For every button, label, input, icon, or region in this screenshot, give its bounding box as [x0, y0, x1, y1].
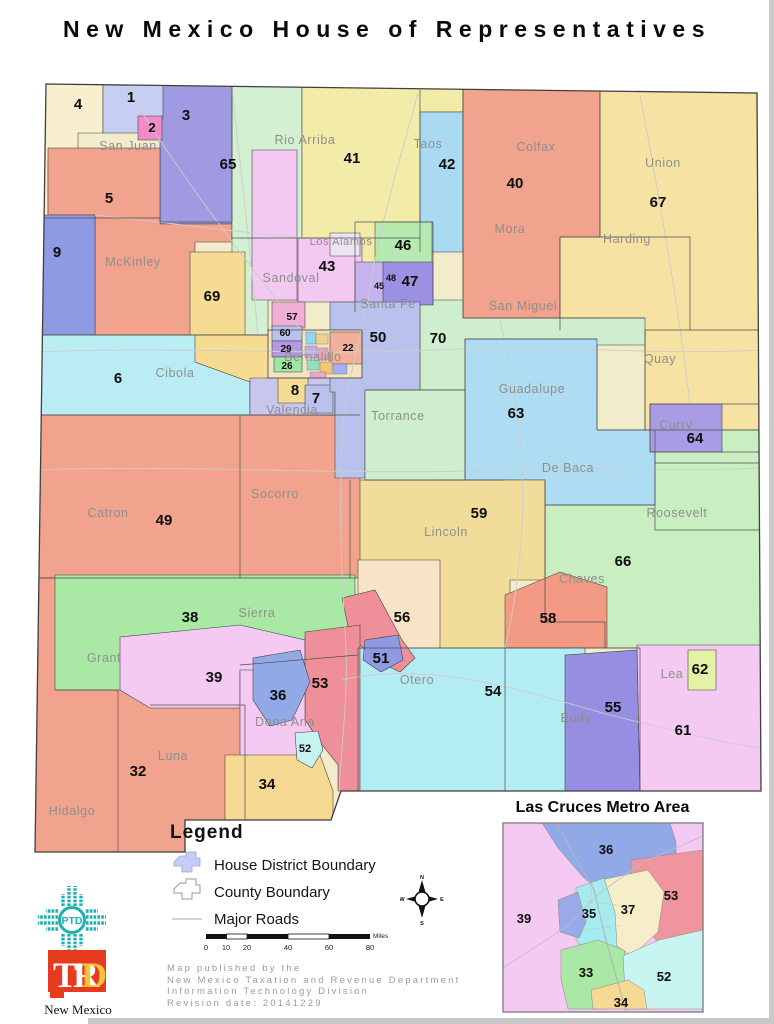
inset-district-label: 33 — [579, 965, 593, 980]
county-label: Rio Arriba — [275, 133, 336, 147]
district-label: 59 — [471, 505, 488, 522]
county-label: Mora — [495, 222, 526, 236]
inset-district-label: 39 — [517, 911, 531, 926]
county-label: Colfax — [516, 140, 555, 154]
legend-item-label: Major Roads — [214, 911, 299, 928]
scalebar-tick-label: 20 — [243, 943, 251, 952]
inset-map: 3653373539335234 — [498, 820, 710, 1016]
inset-district-label: 52 — [657, 969, 671, 984]
page-edge-right — [769, 0, 774, 1024]
county-label: San Miguel — [489, 299, 558, 313]
scalebar-tick-label: 0 — [204, 943, 208, 952]
district-label: 29 — [280, 344, 292, 355]
county-label: Luna — [158, 749, 188, 763]
district-label: 58 — [540, 610, 557, 627]
county-label: Eddy — [561, 711, 592, 725]
county-label: Cibola — [155, 366, 194, 380]
county-label: Chaves — [559, 572, 605, 586]
scale-unit: Miles — [373, 933, 389, 940]
district-label: 7 — [312, 390, 320, 407]
compass-rose: N S W E — [400, 874, 444, 926]
district-label: 3 — [182, 107, 190, 124]
county-label: Sierra — [239, 606, 276, 620]
compass-e: E — [440, 897, 444, 903]
trd-logo-icon: TR D New Mexico — [34, 946, 126, 1022]
district-label: 52 — [299, 743, 311, 755]
county-label: Lea — [661, 667, 684, 681]
county-label: Quay — [644, 352, 676, 366]
district-label: 62 — [692, 661, 709, 678]
district-label: 2 — [148, 120, 155, 135]
county-label: Taos — [414, 137, 443, 151]
compass-s: S — [420, 921, 424, 926]
district-label: 6 — [114, 370, 122, 387]
district-label: 32 — [130, 763, 147, 780]
county-label: Sandoval — [263, 271, 320, 285]
district-label: 66 — [615, 553, 632, 570]
county-label: Catron — [87, 506, 128, 520]
district-label: 34 — [259, 776, 276, 793]
district-label: 8 — [291, 382, 299, 399]
county-label: Los Alamos — [310, 236, 373, 248]
district-label: 65 — [220, 156, 237, 173]
district-label: 45 — [374, 281, 384, 291]
district-label: 61 — [675, 722, 692, 739]
district-label: 42 — [439, 156, 456, 173]
legend-heading: Legend — [170, 822, 450, 844]
district-label: 22 — [342, 343, 354, 354]
map-page: New Mexico House of Representatives — [0, 0, 774, 1024]
county-label: Santa Fe — [360, 297, 416, 311]
district-label: 55 — [605, 699, 622, 716]
district-label: 47 — [402, 273, 419, 290]
district-label: 5 — [105, 190, 113, 207]
county-label: McKinley — [105, 255, 161, 269]
inset-title: Las Cruces Metro Area — [495, 799, 710, 817]
county-label: Torrance — [371, 409, 424, 423]
scale-bar: Miles 01020406080 — [202, 928, 397, 956]
legend-item-label: House District Boundary — [214, 857, 376, 874]
district-label: 60 — [279, 328, 291, 339]
district-label: 56 — [394, 609, 411, 626]
major-roads-icon — [170, 911, 214, 929]
footer-line: Map published by the — [167, 963, 460, 975]
county-label: San Juan — [99, 139, 157, 153]
scalebar-tick-label: 80 — [366, 943, 374, 952]
footer-line: Information Technology Division — [167, 986, 460, 998]
county-label: Hidalgo — [49, 804, 96, 818]
inset-district-label: 34 — [614, 995, 629, 1010]
county-label: Harding — [603, 232, 651, 246]
district-label: 54 — [485, 683, 502, 700]
district-label: 53 — [312, 675, 329, 692]
legend-item-label: County Boundary — [214, 884, 330, 901]
district-label: 64 — [687, 430, 704, 447]
county-label: Valencia — [266, 403, 318, 417]
district-label: 63 — [508, 405, 525, 422]
district-label: 46 — [395, 237, 412, 254]
district-label: 69 — [204, 288, 221, 305]
county-label: Grant — [87, 651, 121, 665]
county-label: Dona Ana — [255, 715, 315, 729]
district-label: 40 — [507, 175, 524, 192]
footer-line: Revision date: 20141229 — [167, 998, 460, 1010]
trd-logo-caption: New Mexico — [44, 1002, 112, 1017]
county-label: Union — [645, 156, 681, 170]
publication-note: Map published by the New Mexico Taxation… — [167, 963, 460, 1009]
scalebar-tick-label: 60 — [325, 943, 333, 952]
ptd-logo-text: PTD — [62, 915, 83, 927]
district-label: 4 — [74, 96, 83, 113]
county-label: Bernalillo — [284, 350, 341, 364]
footer-line: New Mexico Taxation and Revenue Departme… — [167, 975, 460, 987]
district-label: 1 — [127, 89, 135, 106]
inset-district-label: 36 — [599, 842, 613, 857]
district-label: 57 — [286, 312, 298, 323]
scalebar-tick-label: 10 — [222, 943, 230, 952]
scalebar-tick-label: 40 — [284, 943, 292, 952]
district-label: 51 — [373, 650, 390, 667]
district-label: 50 — [370, 329, 387, 346]
district-label: 38 — [182, 609, 199, 626]
district-label: 36 — [270, 687, 287, 704]
county-label: Lincoln — [424, 525, 468, 539]
trd-logo-text-accent: D — [81, 955, 107, 995]
district-label: 49 — [156, 512, 173, 529]
county-label: Guadalupe — [499, 382, 566, 396]
county-label: Roosevelt — [647, 506, 708, 520]
district-label: 41 — [344, 150, 361, 167]
scale-tick-labels: 01020406080 — [204, 943, 374, 952]
compass-w: W — [400, 897, 405, 903]
inset-district-label: 37 — [621, 902, 635, 917]
district-label: 9 — [53, 244, 61, 261]
county-boundary-icon — [170, 877, 214, 908]
county-label: Socorro — [251, 487, 299, 501]
district-label: 48 — [386, 273, 396, 283]
district-label: 43 — [319, 258, 336, 275]
district-label: 70 — [430, 330, 447, 347]
district-label: 39 — [206, 669, 223, 686]
district-label: 67 — [650, 194, 667, 211]
inset-district-label: 53 — [664, 888, 678, 903]
county-label: Otero — [400, 673, 434, 687]
county-label: De Baca — [542, 461, 594, 475]
compass-n: N — [420, 875, 424, 881]
inset-district-label: 35 — [582, 906, 596, 921]
page-edge-bottom — [88, 1018, 774, 1024]
district-label: 26 — [281, 361, 293, 372]
